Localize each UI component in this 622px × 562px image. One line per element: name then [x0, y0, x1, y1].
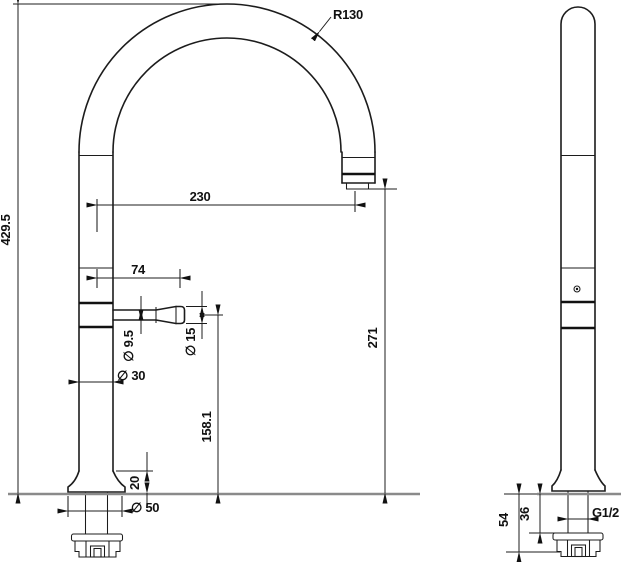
dim-below-counter-depth-label: 54: [496, 512, 511, 527]
handle: [113, 307, 185, 324]
side-mounting-washer: [553, 533, 603, 540]
side-view: 54 36 G1/2: [496, 7, 621, 557]
side-mounting-nut-core: [575, 548, 582, 557]
dim-thread-size: G1/2: [568, 505, 619, 520]
dim-handle-length-label: 74: [131, 262, 146, 277]
handle-knob-end: [176, 307, 185, 324]
dim-total-height-label: 429.5: [0, 214, 13, 245]
mounting-shank: [86, 492, 108, 534]
dim-shank-depth-label: 36: [517, 507, 532, 521]
front-view: R130 429.5 230 74 ∅ 9.5 ∅ 15: [0, 4, 420, 557]
side-mounting-nut-inner: [572, 545, 586, 557]
dim-spout-reach-label: 230: [190, 189, 211, 204]
dim-spout-outlet-height-label: 271: [365, 328, 380, 349]
dim-handle-stem-diameter-label: ∅ 9.5: [121, 330, 136, 362]
dim-handle-knob-diameter-label: ∅ 15: [183, 328, 198, 356]
dim-base-diameter-label: ∅ 50: [131, 500, 159, 515]
handle-stem: [113, 310, 156, 320]
side-mounting-nut: [557, 540, 600, 557]
mounting-hardware-front: [72, 492, 123, 557]
side-mounting-shank: [568, 491, 588, 533]
dim-below-counter-depth: 54: [496, 494, 560, 552]
dim-arc-radius-label: R130: [333, 7, 363, 22]
technical-drawing-page: R130 429.5 230 74 ∅ 9.5 ∅ 15: [0, 0, 622, 562]
mounting-hardware-side: [553, 491, 603, 557]
side-body-outline: [561, 7, 595, 470]
dim-spout-outlet-height: 271: [365, 189, 397, 493]
side-base-flare: [552, 470, 605, 491]
mounting-nut-core: [94, 549, 101, 558]
dim-handle-axis-height: 158.1: [199, 315, 223, 493]
side-mounting-nut-detail: [568, 540, 590, 557]
dim-base-diameter: ∅ 50: [68, 496, 159, 517]
dim-handle-axis-height-label: 158.1: [199, 411, 214, 442]
spout: [342, 152, 375, 189]
dim-body-diameter: ∅ 30: [79, 368, 145, 383]
dim-handle-knob-diameter: ∅ 15: [183, 291, 207, 356]
dim-body-diameter-label: ∅ 30: [117, 368, 145, 383]
mounting-nut-inner: [91, 546, 105, 557]
dim-arc-radius: R130: [320, 7, 363, 32]
dim-spout-reach: 230: [97, 189, 355, 232]
dim-thread-size-label: G1/2: [592, 505, 619, 520]
faucet-outer-arc: [79, 4, 375, 152]
mounting-washer: [72, 534, 123, 541]
handle-axis-dot-center: [576, 288, 578, 290]
aerator: [347, 183, 369, 189]
handle-taper: [156, 307, 176, 324]
technical-drawing-canvas: R130 429.5 230 74 ∅ 9.5 ∅ 15: [0, 0, 622, 562]
faucet-inner-arc: [113, 38, 341, 152]
dim-total-height: 429.5: [0, 4, 229, 493]
dim-handle-stem-diameter: ∅ 9.5: [121, 296, 141, 362]
dim-handle-length: 74: [97, 262, 180, 288]
base-flare: [68, 471, 125, 492]
dim-base-height-label: 20: [127, 476, 142, 490]
dim-shank-depth: 36: [517, 494, 555, 533]
